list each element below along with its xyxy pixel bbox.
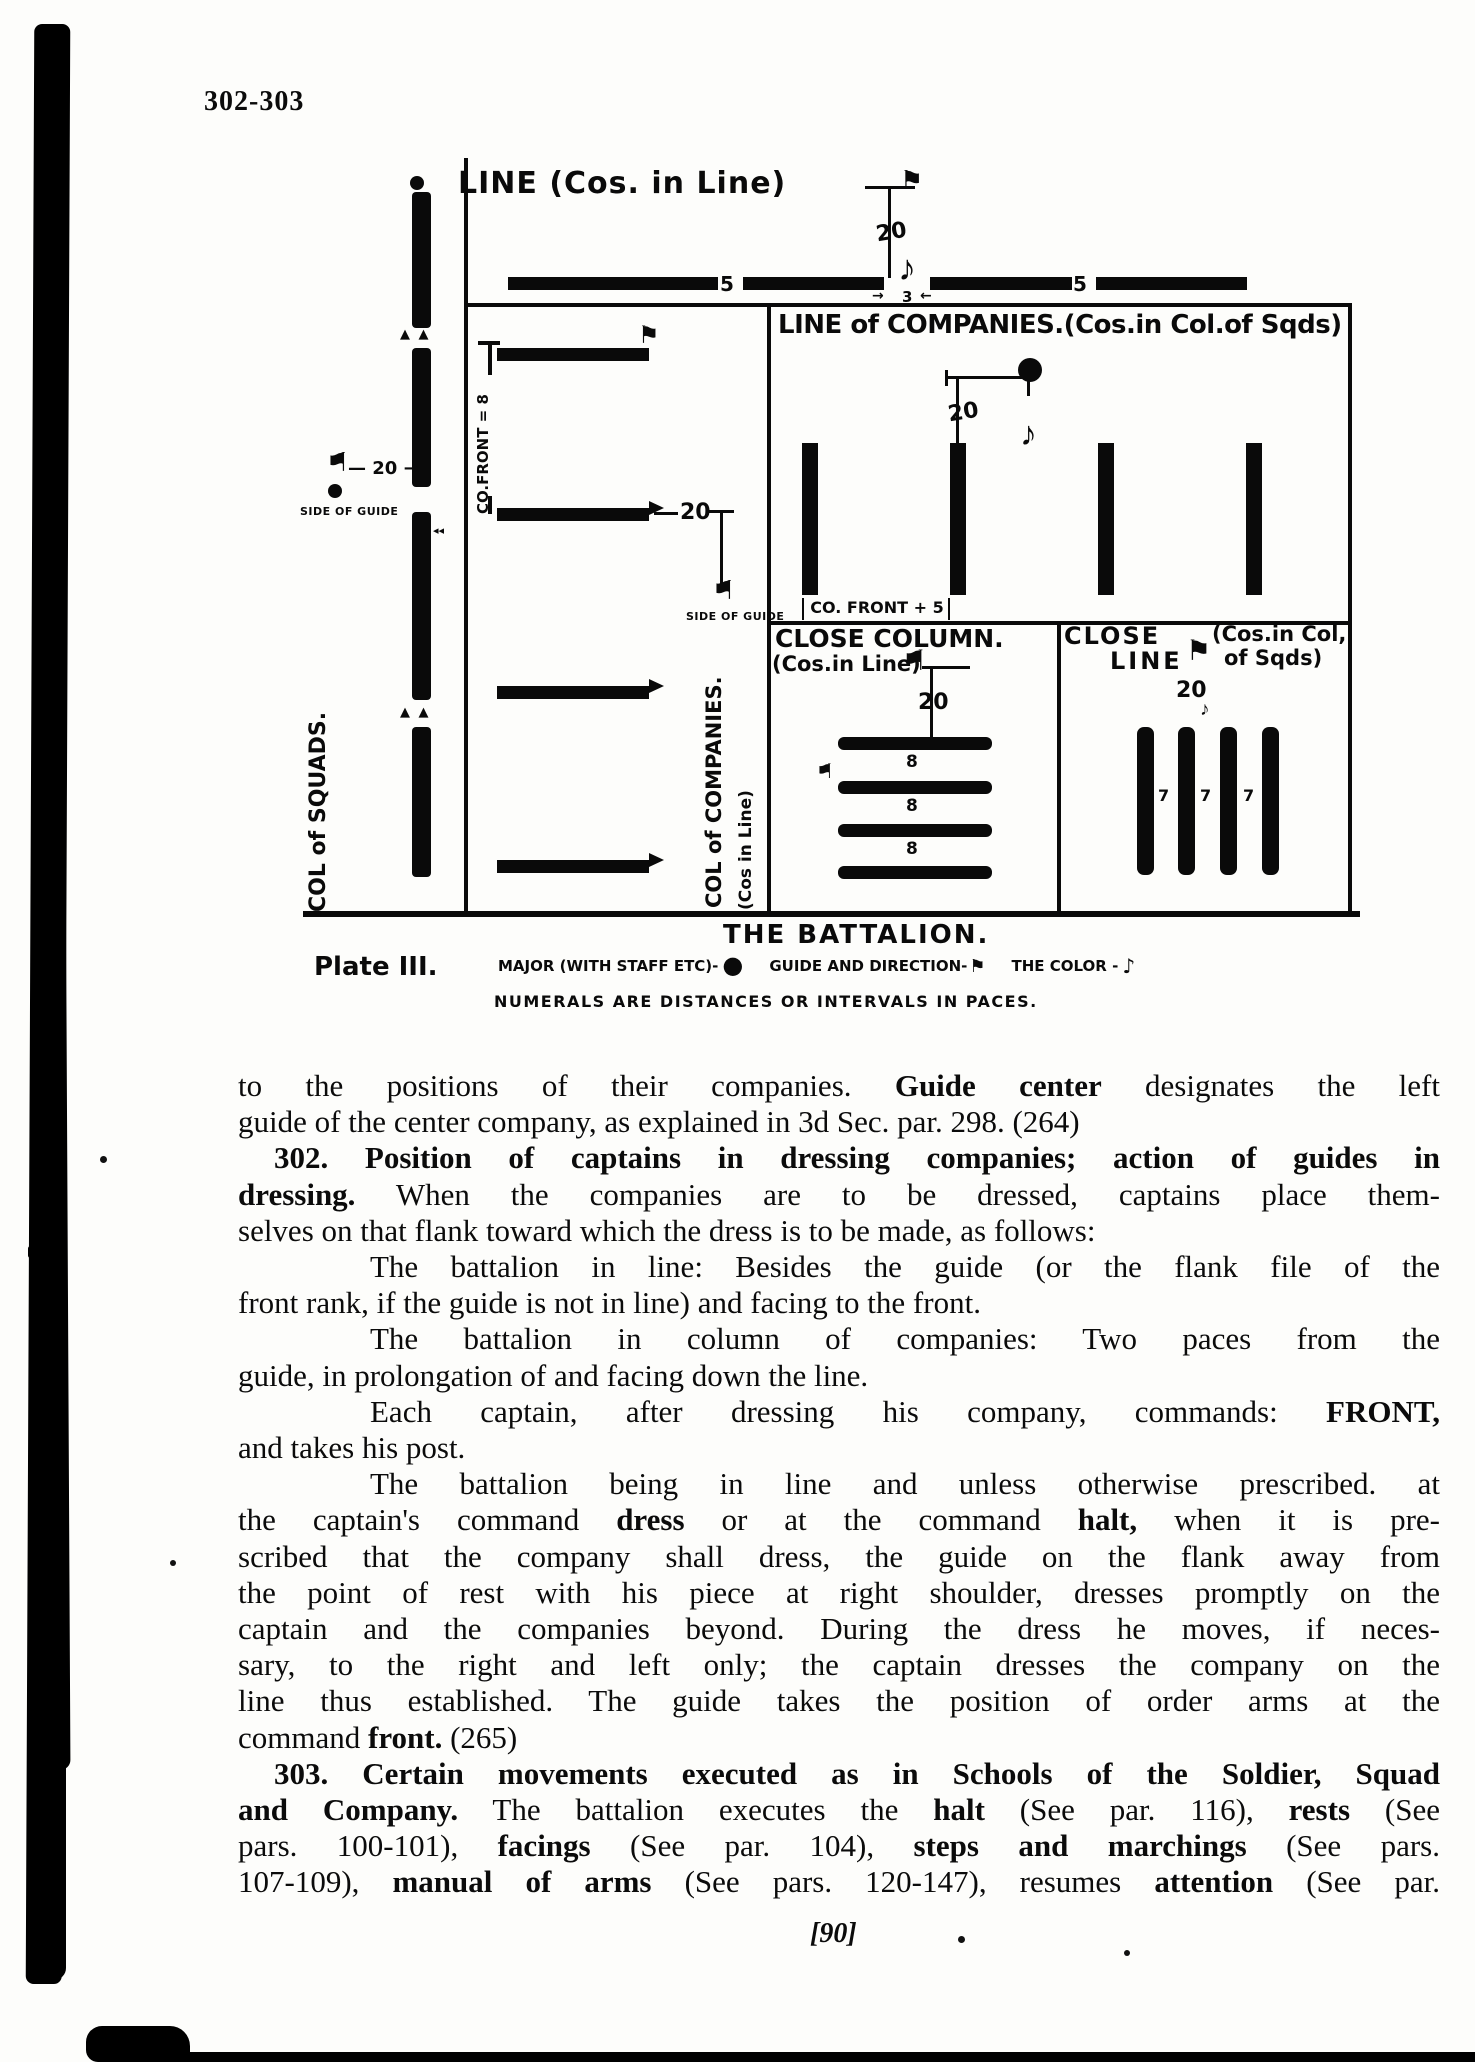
- distance-label-20: 20: [946, 398, 980, 427]
- guidon-tick: [945, 370, 948, 386]
- body-text-line: and Company. The battalion executes the …: [238, 1792, 1440, 1828]
- section-subtitle-close-line-1: (Cos.in Col,: [1212, 622, 1346, 646]
- battalion-line-segment: [743, 277, 884, 290]
- ink-speck: [28, 1246, 33, 1258]
- guidon-ball-icon: [1018, 358, 1042, 382]
- body-text-line: The battalion in column of companies: Tw…: [238, 1321, 1440, 1357]
- guide-note-icon: [328, 484, 342, 498]
- body-text-line: the point of rest with his piece at righ…: [238, 1575, 1440, 1611]
- distance-label-8: 8: [906, 752, 918, 772]
- company-column-bar: [802, 443, 818, 595]
- ink-speck: [100, 1156, 107, 1163]
- side-of-guide-label: SIDE OF GUIDE: [300, 505, 398, 518]
- co-front-tick: [948, 598, 950, 620]
- section-label-col-of-squads: COL of SQUADS.: [306, 712, 331, 912]
- squad-column-bar: [412, 727, 431, 877]
- body-text-line: sary, to the right and left only; the ca…: [238, 1647, 1440, 1683]
- guide-flag-icon: ⚑: [712, 578, 735, 604]
- body-text-line: scribed that the company shall dress, th…: [238, 1539, 1440, 1575]
- color-gap-arrow: ←: [920, 288, 932, 304]
- ink-bar-bottom: [180, 2052, 1475, 2062]
- legend-guide-label: GUIDE AND DIRECTION-: [769, 957, 967, 975]
- plate-diagram: LINE (Cos. in Line) ⚑ 20 5 5 ♪ → 3 ← LIN…: [0, 0, 1475, 1050]
- frame-line-bottom: [303, 911, 1360, 917]
- body-text-line: and takes his post.: [238, 1430, 1440, 1466]
- company-column-bar: [1098, 443, 1114, 595]
- co-front-line: [488, 496, 492, 514]
- body-text: to the positions of their companies. Gui…: [238, 1068, 1440, 1901]
- section-label-col-of-companies: COL of COMPANIES.: [702, 656, 726, 908]
- ink-speck: [958, 1936, 965, 1943]
- bar-arrow-tip: [649, 679, 664, 693]
- guide-symbol-icon: ⚑: [969, 956, 985, 977]
- section-title-close-line-2: LINE: [1110, 647, 1183, 675]
- section-title-close-column: CLOSE COLUMN.: [775, 624, 1004, 653]
- section-sublabel-cos-in-line: (Cos in Line): [736, 738, 756, 910]
- section-title-line-of-companies: LINE of COMPANIES.(Cos.in Col.of Sqds): [778, 310, 1342, 340]
- ink-speck: [170, 1560, 176, 1566]
- battalion-line-segment: [930, 277, 1072, 290]
- major-dot-icon: [410, 176, 424, 190]
- section-subtitle-close-column: (Cos.in Line): [772, 652, 921, 676]
- company-line-bar: [497, 860, 649, 873]
- co-front-label-rotated: CO.FRONT = 8: [474, 376, 492, 514]
- frame-line-vertical: [464, 158, 468, 914]
- company-line-bar: [497, 508, 649, 521]
- side-of-guide-label: SIDE OF GUIDE: [686, 610, 784, 623]
- co-front-line: [488, 341, 492, 375]
- company-line-bar: [838, 824, 992, 837]
- co-front-label: CO. FRONT + 5: [806, 598, 948, 617]
- legend-row: MAJOR (WITH STAFF ETC)- ● GUIDE AND DIRE…: [498, 954, 1135, 978]
- company-line-bar: [838, 781, 992, 794]
- body-text-line: line thus established. The guide takes t…: [238, 1683, 1440, 1719]
- body-text-line: guide of the center company, as explaine…: [238, 1104, 1440, 1140]
- body-text-line: 302. Position of captains in dressing co…: [238, 1140, 1440, 1176]
- company-line-bar: [838, 737, 992, 750]
- distance-label-20: 20: [874, 218, 908, 247]
- interval-label-7: 7: [1243, 786, 1254, 805]
- major-symbol-icon: ●: [722, 956, 743, 975]
- co-front-tick: [802, 598, 804, 620]
- company-column-bar: [1178, 727, 1195, 875]
- company-column-bar: [1262, 727, 1279, 875]
- body-text-line: captain and the companies beyond. During…: [238, 1611, 1440, 1647]
- plate-label: Plate III.: [314, 952, 438, 982]
- body-text-line: 107-109), manual of arms (See pars. 120-…: [238, 1864, 1440, 1900]
- color-symbol-icon: ♪: [1122, 954, 1135, 978]
- color-note-icon: ♪: [1020, 418, 1037, 452]
- frame-line-vertical: [1057, 621, 1061, 914]
- body-text-line: The battalion being in line and unless o…: [238, 1466, 1440, 1502]
- interval-label-7: 7: [1200, 786, 1211, 805]
- body-text-line: front rank, if the guide is not in line)…: [238, 1285, 1440, 1321]
- section-title-close-line-1: CLOSE: [1064, 622, 1160, 650]
- company-column-bar: [1137, 727, 1154, 875]
- company-line-bar: [497, 686, 649, 699]
- body-text-line: Each captain, after dressing his company…: [238, 1394, 1440, 1430]
- guide-marks: ◂◂: [433, 524, 444, 537]
- company-column-bar: [1220, 727, 1237, 875]
- scanned-page: 302-303 LINE (Cos. in Line) ⚑ 20 5 5 ♪ →…: [0, 0, 1475, 2062]
- body-text-line: the captain's command dress or at the co…: [238, 1502, 1440, 1538]
- frame-line-vertical: [1348, 303, 1352, 914]
- distance-label-20: 20: [680, 500, 711, 525]
- distance-label-20: — 20 →: [348, 458, 419, 479]
- body-text-line: to the positions of their companies. Gui…: [238, 1068, 1440, 1104]
- interval-label-7: 7: [1158, 786, 1169, 805]
- interval-label-5: 5: [1073, 272, 1087, 296]
- company-column-bar: [950, 443, 966, 595]
- frame-line-vertical: [767, 303, 771, 914]
- color-note-icon: ♪: [898, 250, 916, 286]
- legend-note: NUMERALS ARE DISTANCES OR INTERVALS IN P…: [494, 992, 1038, 1011]
- guide-flag-icon: ⚑: [638, 324, 660, 348]
- guide-flag-icon: ⚑: [902, 648, 927, 676]
- guide-flag-icon: ⚑: [900, 168, 923, 194]
- color-gap-label: 3: [902, 288, 912, 306]
- company-line-bar: [497, 348, 649, 361]
- body-text-line: command front. (265): [238, 1720, 1440, 1756]
- guide-flag-icon: ⚑: [326, 450, 349, 476]
- dimension-line: [654, 512, 678, 515]
- body-text-line: The battalion in line: Besides the guide…: [238, 1249, 1440, 1285]
- page-number: [90]: [810, 1918, 857, 1950]
- interval-label-5: 5: [720, 272, 734, 296]
- legend-major-label: MAJOR (WITH STAFF ETC)-: [498, 957, 718, 975]
- squad-column-bar: [412, 512, 431, 700]
- color-gap-arrow: →: [872, 288, 884, 304]
- guide-flag-icon: ⚑: [1186, 638, 1211, 666]
- battalion-line-segment: [508, 277, 718, 290]
- break-marks: ▲ ▲: [400, 705, 431, 720]
- ink-blob: [86, 2026, 190, 2062]
- binding-ink-strip: [34, 1480, 66, 1980]
- guide-flag-icon: ⚑: [816, 762, 834, 782]
- guidon-stem: [1027, 380, 1030, 396]
- company-line-bar: [838, 866, 992, 879]
- company-column-bar: [1246, 443, 1262, 595]
- body-text-line: guide, in prolongation of and facing dow…: [238, 1358, 1440, 1394]
- legend-color-label: THE COLOR -: [1012, 957, 1119, 975]
- distance-label-8: 8: [906, 839, 918, 859]
- ink-speck: [1124, 1950, 1130, 1956]
- color-note-icon: ♪: [1200, 700, 1210, 719]
- body-text-line: pars. 100-101), facings (See par. 104), …: [238, 1828, 1440, 1864]
- squad-column-bar: [412, 192, 431, 328]
- section-subtitle-close-line-2: of Sqds): [1224, 646, 1322, 670]
- distance-label-20: 20: [918, 690, 949, 715]
- section-title-line: LINE (Cos. in Line): [458, 166, 786, 201]
- distance-label-8: 8: [906, 796, 918, 816]
- break-marks: ▲ ▲: [400, 327, 431, 342]
- body-text-line: 303. Certain movements executed as in Sc…: [238, 1756, 1440, 1792]
- battalion-line-segment: [1096, 277, 1247, 290]
- body-text-line: dressing. When the companies are to be d…: [238, 1177, 1440, 1213]
- diagram-caption: THE BATTALION.: [723, 920, 989, 950]
- bar-arrow-tip: [649, 853, 664, 867]
- body-text-line: selves on that flank toward which the dr…: [238, 1213, 1440, 1249]
